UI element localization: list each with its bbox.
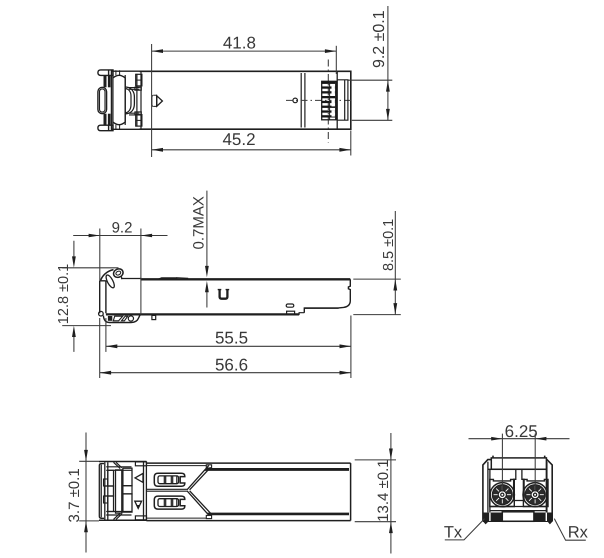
svg-text:45.2: 45.2 [222, 130, 255, 149]
svg-text:13.4 ±0.1: 13.4 ±0.1 [375, 459, 392, 521]
svg-text:9.2: 9.2 [112, 220, 133, 237]
svg-text:55.5: 55.5 [215, 328, 248, 347]
svg-text:12.8 ±0.1: 12.8 ±0.1 [56, 264, 72, 324]
svg-text:3.7 ±0.1: 3.7 ±0.1 [66, 468, 83, 522]
svg-text:Tx: Tx [444, 523, 463, 541]
svg-text:0.7MAX: 0.7MAX [191, 196, 208, 249]
svg-text:Rx: Rx [568, 523, 589, 541]
svg-text:9.2 ±0.1: 9.2 ±0.1 [371, 10, 388, 68]
svg-text:8.5 ±0.1: 8.5 ±0.1 [381, 219, 397, 271]
svg-text:41.8: 41.8 [223, 34, 256, 53]
svg-text:6.25: 6.25 [505, 422, 538, 441]
svg-text:56.6: 56.6 [215, 355, 248, 374]
